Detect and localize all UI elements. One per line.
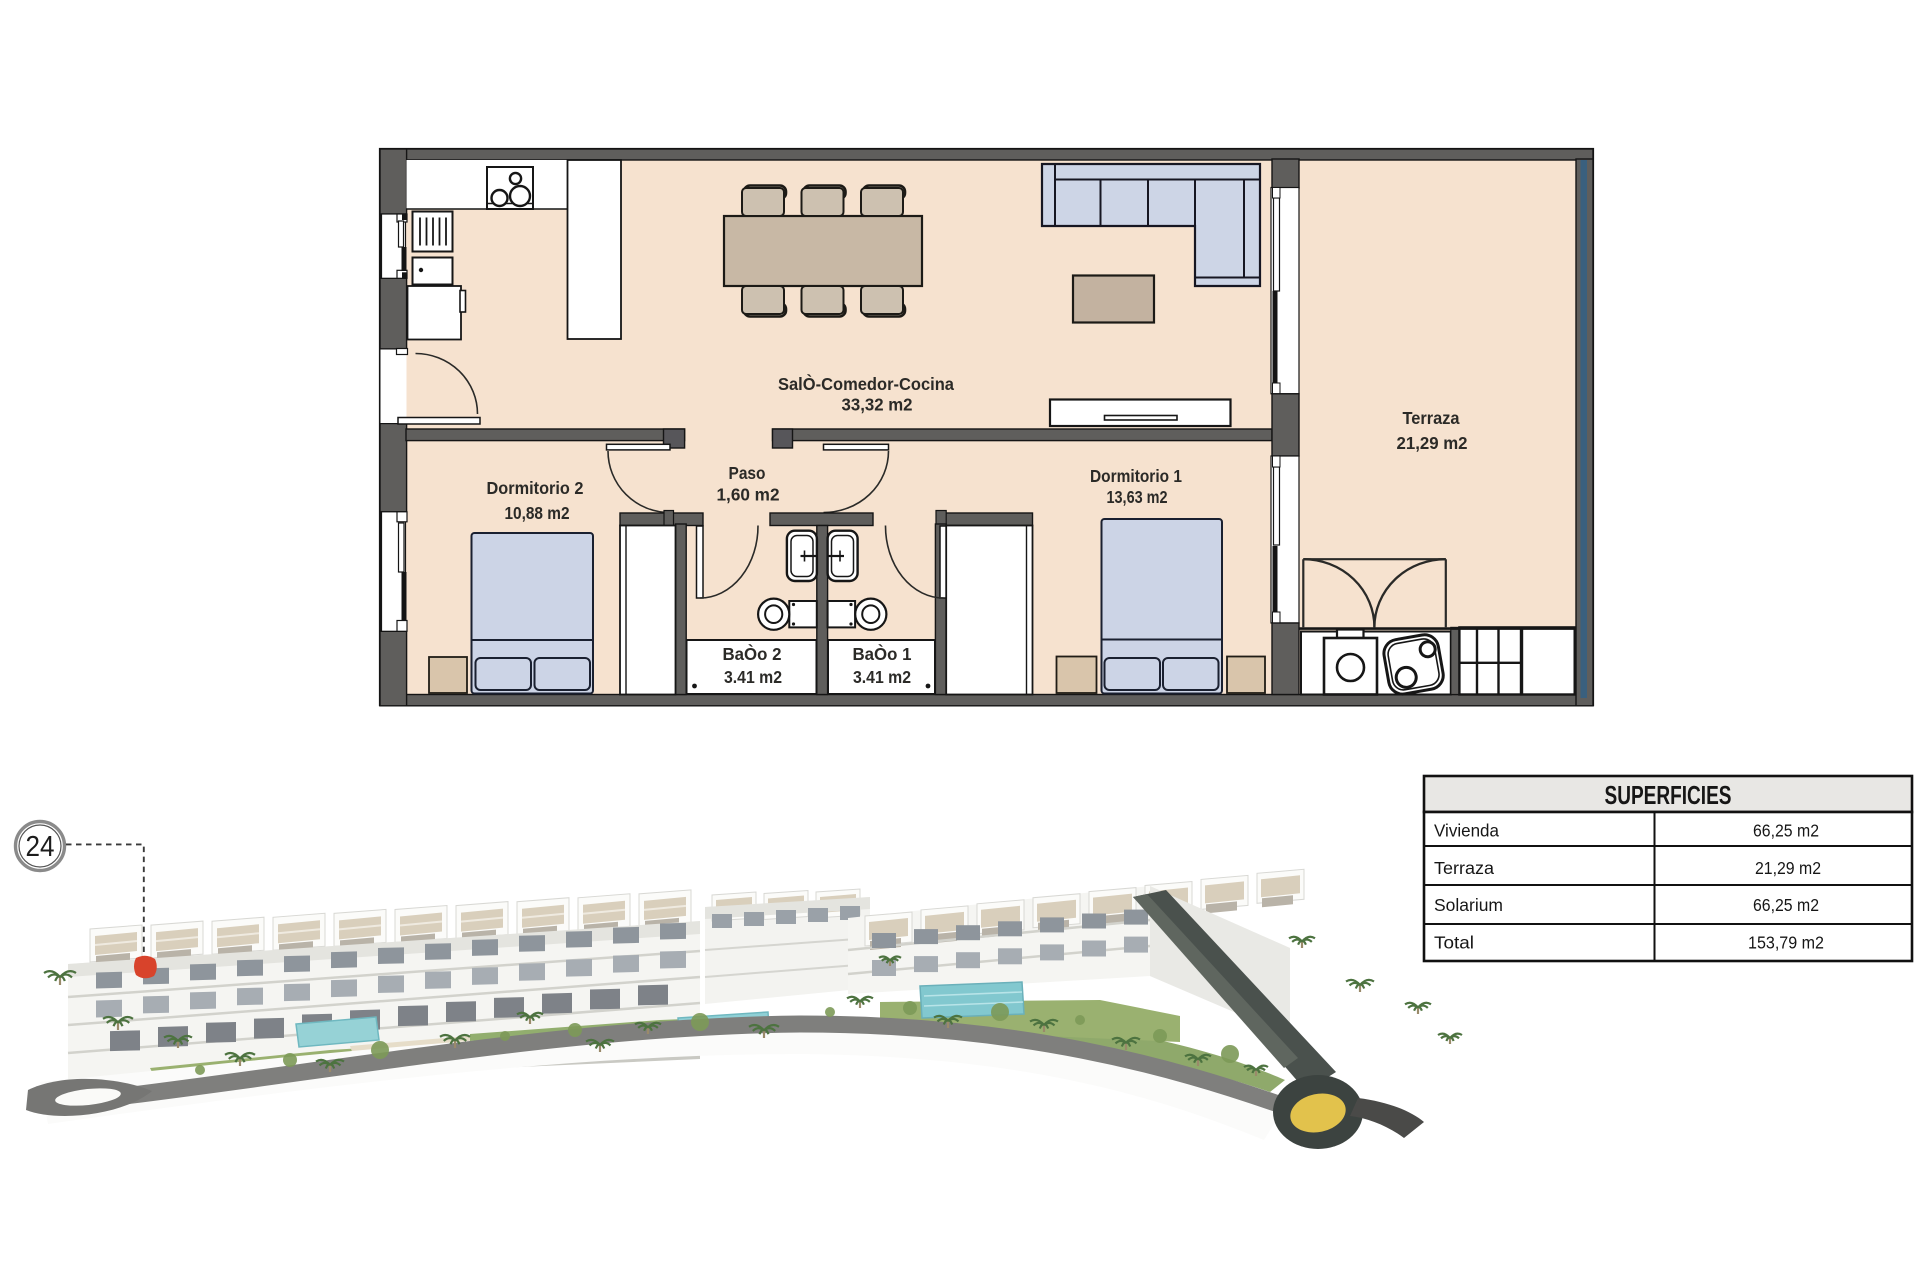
svg-text:Paso: Paso (729, 463, 766, 483)
svg-text:Solarium: Solarium (1434, 895, 1503, 915)
svg-text:3.41 m2: 3.41 m2 (724, 667, 782, 687)
svg-text:10,88 m2: 10,88 m2 (505, 503, 570, 523)
svg-text:SalÒ-Comedor-Cocina: SalÒ-Comedor-Cocina (778, 373, 954, 394)
svg-text:21,29 m2: 21,29 m2 (1755, 858, 1821, 878)
svg-text:153,79 m2: 153,79 m2 (1748, 933, 1824, 953)
svg-text:Vivienda: Vivienda (1434, 821, 1499, 841)
svg-text:1,60 m2: 1,60 m2 (717, 485, 780, 505)
svg-text:66,25 m2: 66,25 m2 (1753, 895, 1819, 915)
svg-text:Terraza: Terraza (1434, 858, 1494, 878)
svg-text:24: 24 (26, 831, 55, 863)
svg-text:66,25 m2: 66,25 m2 (1753, 821, 1819, 841)
svg-text:Dormitorio 1: Dormitorio 1 (1090, 466, 1182, 486)
svg-text:33,32 m2: 33,32 m2 (842, 395, 913, 415)
svg-text:SUPERFICIES: SUPERFICIES (1605, 780, 1732, 810)
svg-text:21,29 m2: 21,29 m2 (1397, 433, 1468, 453)
svg-text:3.41 m2: 3.41 m2 (853, 667, 911, 687)
svg-text:Terraza: Terraza (1403, 408, 1460, 428)
svg-text:BaÒo 1: BaÒo 1 (853, 643, 912, 664)
svg-text:BaÒo 2: BaÒo 2 (723, 643, 782, 664)
svg-text:Dormitorio 2: Dormitorio 2 (487, 478, 584, 498)
svg-text:Total: Total (1434, 933, 1474, 953)
svg-text:13,63 m2: 13,63 m2 (1107, 487, 1168, 507)
